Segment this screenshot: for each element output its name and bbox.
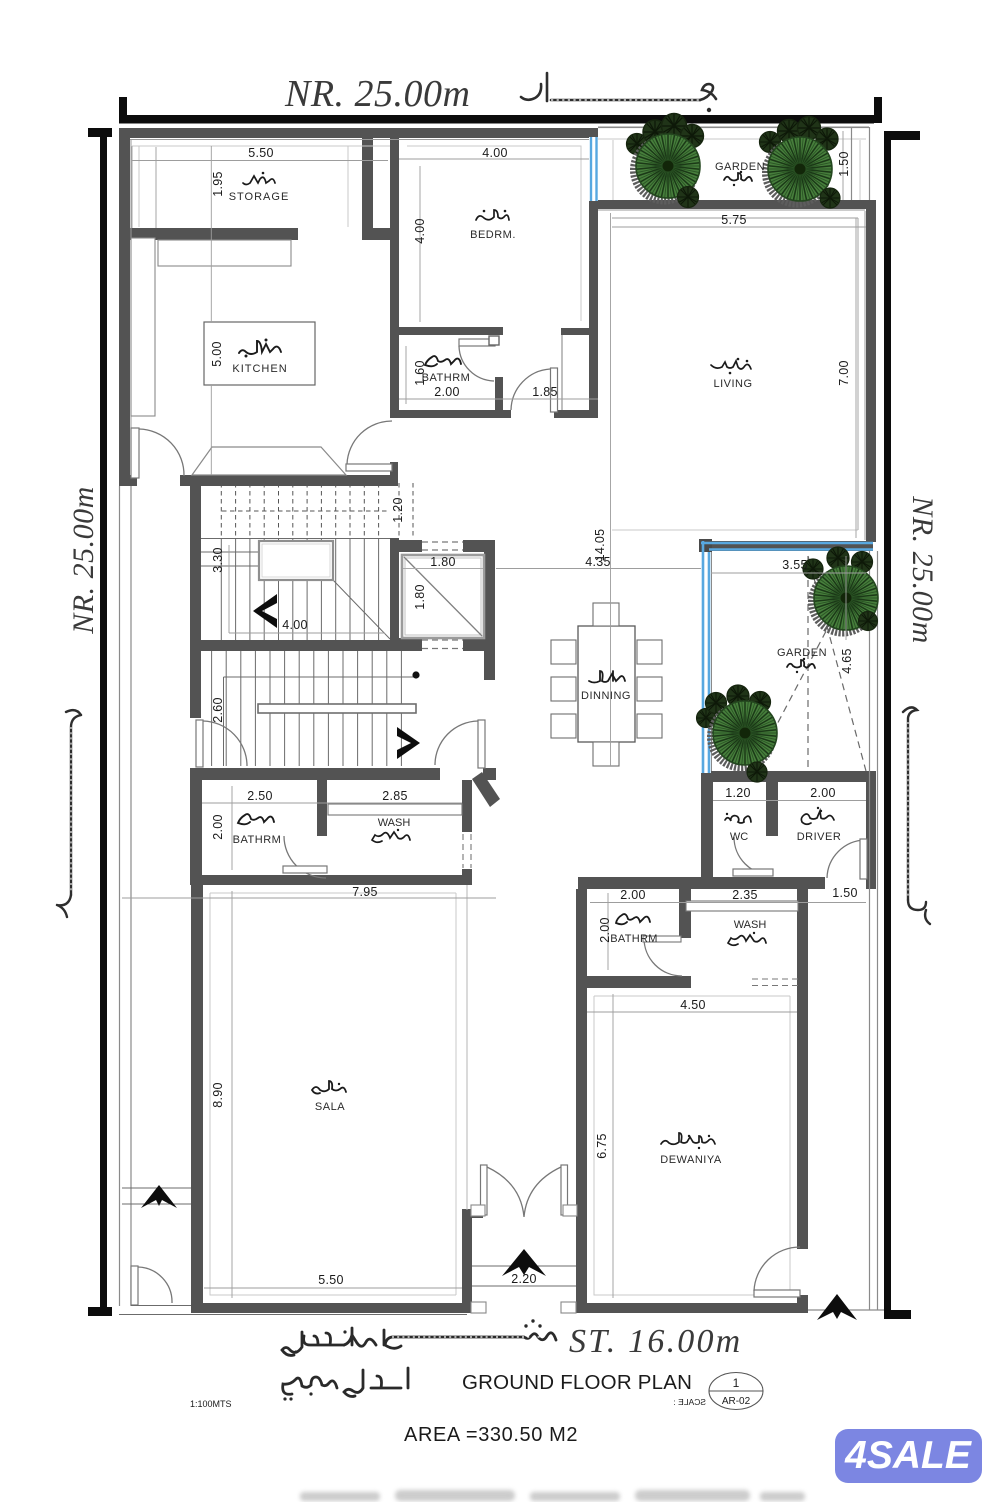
svg-text:5.75: 5.75 bbox=[721, 213, 747, 227]
svg-text:2.85: 2.85 bbox=[382, 789, 408, 803]
svg-text:2.00: 2.00 bbox=[211, 814, 225, 840]
svg-text:1.80: 1.80 bbox=[413, 584, 427, 610]
svg-text:1.20: 1.20 bbox=[725, 786, 751, 800]
svg-text:2.50: 2.50 bbox=[247, 789, 273, 803]
svg-text:2.00: 2.00 bbox=[620, 888, 646, 902]
svg-text:14.05: 14.05 bbox=[593, 529, 607, 562]
svg-text:3.30: 3.30 bbox=[211, 547, 225, 573]
svg-text:NR. 25.00m: NR. 25.00m bbox=[906, 495, 939, 644]
svg-text:ST. 16.00m: ST. 16.00m bbox=[569, 1323, 742, 1360]
svg-text:3.55: 3.55 bbox=[782, 558, 808, 572]
svg-text:1:100MTS: 1:100MTS bbox=[190, 1399, 232, 1409]
svg-text:BATHRM: BATHRM bbox=[233, 834, 282, 846]
svg-text:7.00: 7.00 bbox=[837, 360, 851, 386]
svg-text:DEWANIYA: DEWANIYA bbox=[660, 1154, 722, 1166]
svg-text:1.50: 1.50 bbox=[837, 151, 851, 177]
svg-text:2.35: 2.35 bbox=[732, 888, 758, 902]
svg-text:1.20: 1.20 bbox=[391, 497, 405, 523]
svg-text:2.00: 2.00 bbox=[810, 786, 836, 800]
svg-text:LIVING: LIVING bbox=[713, 378, 752, 390]
svg-text:1.50: 1.50 bbox=[832, 886, 858, 900]
svg-text:1.95: 1.95 bbox=[211, 171, 225, 197]
svg-text:4.50: 4.50 bbox=[680, 998, 706, 1012]
svg-text:8.90: 8.90 bbox=[211, 1082, 225, 1108]
svg-text:4.00: 4.00 bbox=[413, 218, 427, 244]
svg-text:WASH: WASH bbox=[734, 919, 767, 931]
svg-text:NR. 25.00m: NR. 25.00m bbox=[67, 486, 100, 635]
svg-text:5.50: 5.50 bbox=[318, 1273, 344, 1287]
svg-text:4.00: 4.00 bbox=[482, 146, 508, 160]
svg-text:GARDEN: GARDEN bbox=[715, 161, 765, 173]
svg-text:2.60: 2.60 bbox=[211, 697, 225, 723]
svg-text:5.50: 5.50 bbox=[248, 146, 274, 160]
svg-text:4SALE: 4SALE bbox=[844, 1434, 972, 1477]
svg-text:SALA: SALA bbox=[315, 1101, 345, 1113]
svg-text:DRIVER: DRIVER bbox=[797, 831, 842, 843]
svg-text:4.65: 4.65 bbox=[840, 648, 854, 674]
svg-text:6.75: 6.75 bbox=[595, 1133, 609, 1159]
svg-text:BEDRM.: BEDRM. bbox=[470, 229, 516, 241]
svg-text:BATHRM: BATHRM bbox=[610, 933, 657, 945]
svg-text:SCALE :: SCALE : bbox=[673, 1397, 706, 1407]
svg-text:NR. 25.00m: NR. 25.00m bbox=[284, 73, 471, 115]
svg-text:4.00: 4.00 bbox=[282, 618, 308, 632]
svg-text:7.95: 7.95 bbox=[352, 885, 378, 899]
svg-text:2.00: 2.00 bbox=[434, 385, 460, 399]
svg-text:DINNING: DINNING bbox=[581, 690, 631, 702]
svg-text:GARDEN: GARDEN bbox=[777, 647, 827, 659]
svg-text:1.85: 1.85 bbox=[532, 385, 558, 399]
svg-text:WASH: WASH bbox=[378, 817, 411, 829]
svg-text:2.20: 2.20 bbox=[511, 1272, 537, 1286]
svg-text:1: 1 bbox=[733, 1376, 740, 1390]
svg-text:1.80: 1.80 bbox=[430, 555, 456, 569]
svg-text:AR-02: AR-02 bbox=[722, 1396, 751, 1407]
svg-text:BATHRM: BATHRM bbox=[422, 372, 471, 384]
svg-text:STORAGE: STORAGE bbox=[229, 191, 290, 203]
svg-text:5.00: 5.00 bbox=[210, 341, 224, 367]
svg-text:GROUND FLOOR PLAN: GROUND FLOOR PLAN bbox=[462, 1371, 692, 1394]
svg-text:KITCHEN: KITCHEN bbox=[232, 363, 287, 375]
svg-text:AREA =330.50 M2: AREA =330.50 M2 bbox=[404, 1424, 578, 1446]
svg-text:WC: WC bbox=[730, 831, 748, 843]
